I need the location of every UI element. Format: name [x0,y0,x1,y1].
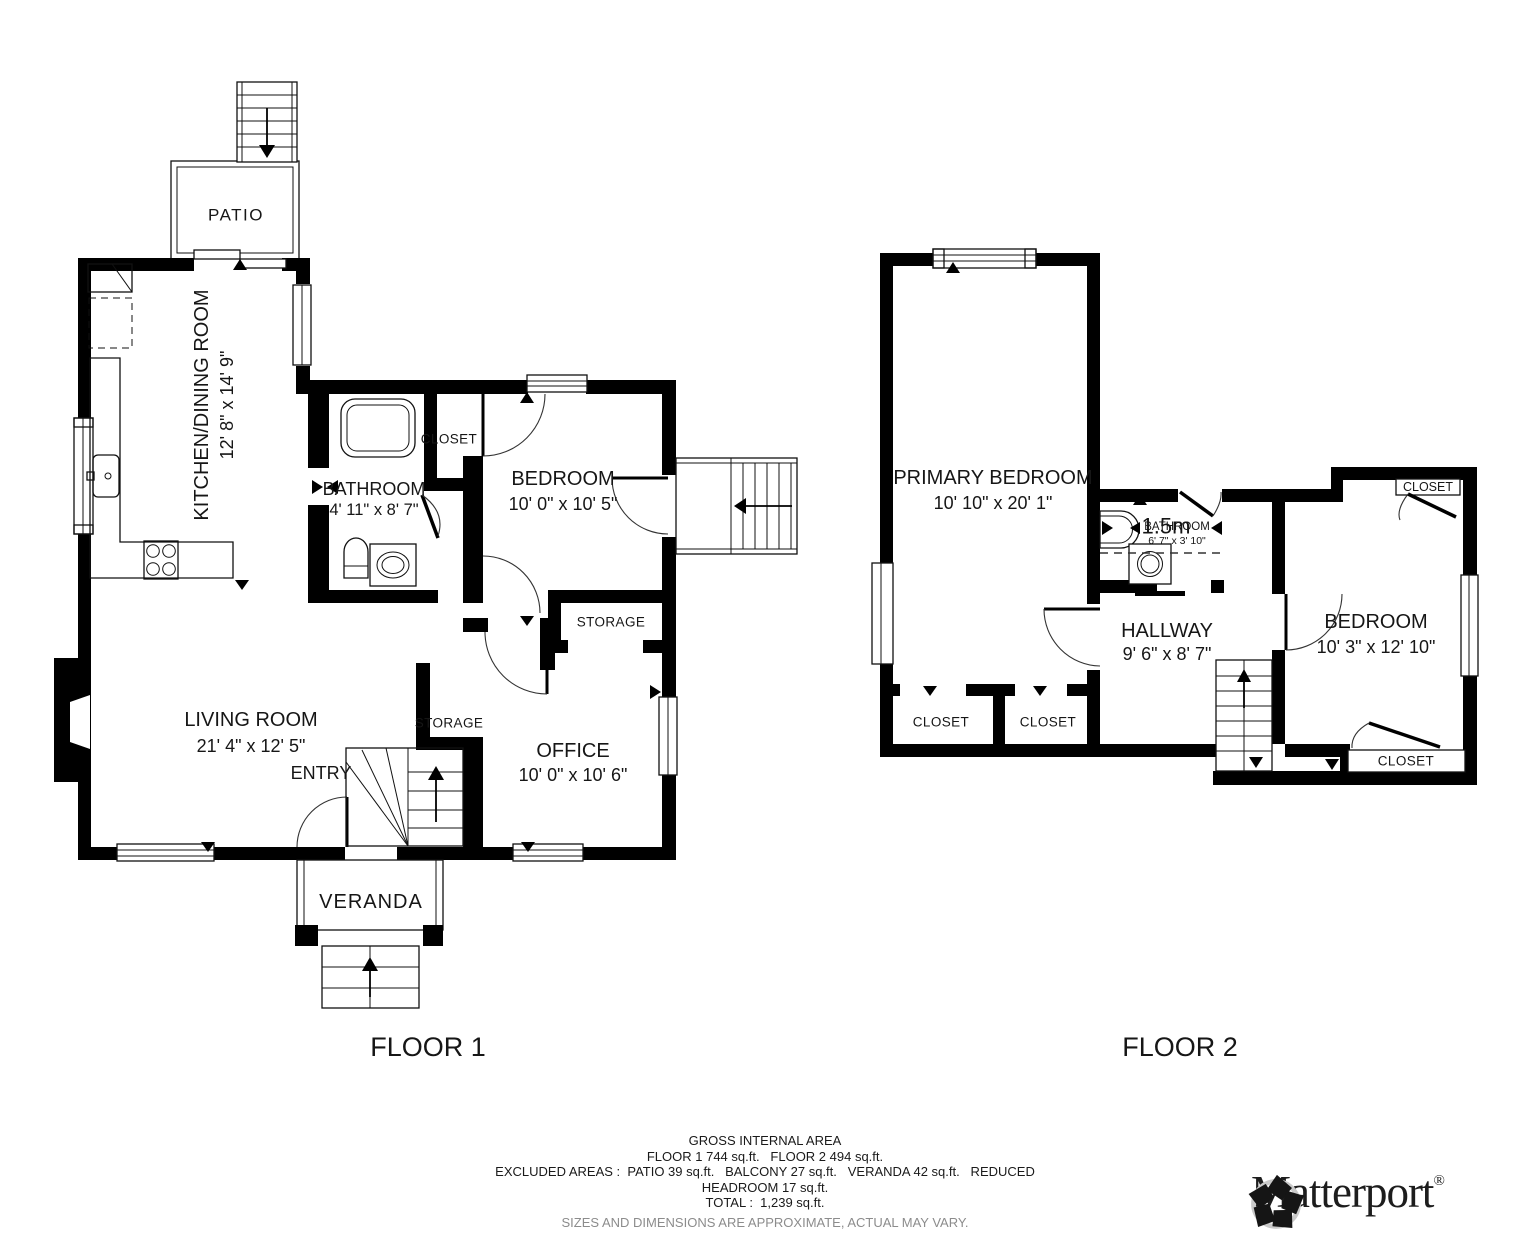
bathtub-icon [341,399,415,457]
window-bedroom2-right-icon [1461,575,1478,676]
summary-gross-title: GROSS INTERNAL AREA [0,1133,1530,1149]
window-primary-left-icon [872,563,893,664]
room-label-storage-lower: STORAGE [415,716,484,731]
door-closet-bottom-icon [1352,723,1440,748]
door-bedroom1-exterior-icon [612,478,668,534]
room-label-closet-right: CLOSET [1020,715,1076,730]
room-label-bathroom1: BATHROOM [323,479,426,499]
window-living-bottom-icon [117,844,214,861]
floorplan-sheet: PATIO KITCHEN/DINING ROOM 12' 8" x 14' 9… [0,0,1530,1253]
room-label-closet-left: CLOSET [913,715,969,730]
floor1-title: FLOOR 1 [370,1032,486,1062]
room-label-closet-bottom: CLOSET [1378,754,1434,769]
room-label-closet1: CLOSET [421,432,477,447]
room-dims-living: 21' 4" x 12' 5" [197,736,306,756]
floor1-stairs-top-icon [237,82,297,162]
room-label-office: OFFICE [536,740,609,762]
door-bedroom1-icon [483,394,545,456]
window-kitchen-right-icon [293,285,311,365]
room-dims-bedroom2: 10' 3" x 12' 10" [1317,637,1436,657]
window-primary-top-icon [933,249,1036,268]
toilet-icon [344,538,368,578]
door-office-icon [485,632,547,694]
room-dims-bedroom1: 10' 0" x 10' 5" [509,494,618,514]
washer-icon [1129,544,1171,584]
door-bathroom1-icon [422,495,440,538]
door-closet-top-icon [1399,494,1456,520]
floor1-veranda-icon [295,860,443,1008]
room-dims-kitchen: 12' 8" x 14' 9" [217,351,237,460]
floorplan-drawing: PATIO KITCHEN/DINING ROOM 12' 8" x 14' 9… [0,0,1530,1253]
summary-floor-areas: FLOOR 1 744 sq.ft. FLOOR 2 494 sq.ft. [0,1149,1530,1165]
door-bathroom2-icon [1180,492,1221,516]
door-entry-icon [297,797,347,847]
floor1-plan: PATIO KITCHEN/DINING ROOM 12' 8" x 14' 9… [54,82,797,1062]
floor2-plan: PRIMARY BEDROOM 10' 10" x 20' 1" BATHROO… [872,249,1478,1062]
window-office-bottom-icon [513,844,583,861]
room-dims-office: 10' 0" x 10' 6" [519,765,628,785]
room-label-primary: PRIMARY BEDROOM [893,467,1092,489]
room-label-entry: ENTRY [291,763,352,783]
registered-mark: ® [1433,1173,1444,1189]
matterport-logo: Matterport® [1245,1166,1445,1218]
room-label-closet-top: CLOSET [1403,480,1453,494]
room-label-patio: PATIO [208,206,264,225]
room-dims-bathroom2: 6' 7" x 3' 10" [1148,535,1206,547]
floor2-stairs-icon [1216,660,1272,771]
room-label-bedroom1: BEDROOM [511,468,614,490]
stove-icon [144,541,178,579]
bath-sink-icon [370,544,416,586]
room-label-kitchen: KITCHEN/DINING ROOM [191,289,213,520]
room-dims-primary: 10' 10" x 20' 1" [934,493,1053,513]
floor2-title: FLOOR 2 [1122,1032,1238,1062]
appliance-dashed-icon [89,298,132,348]
fireplace-notch [70,695,90,749]
room-label-bedroom2: BEDROOM [1324,611,1427,633]
room-label-veranda: VERANDA [319,891,423,913]
floor1-winder-stairs-icon [346,748,463,846]
matterport-pinwheel-icon [1245,1166,1307,1240]
room-dims-bathroom1: 4' 11" x 8' 7" [329,501,418,519]
room-dims-hallway: 9' 6" x 8' 7" [1123,644,1212,664]
floor1-stairs-right-icon [676,458,797,554]
room-label-storage-upper: STORAGE [577,615,646,630]
room-label-hallway: HALLWAY [1121,620,1213,642]
window-bedroom-top-icon [527,375,587,392]
door-nook-icon [483,556,540,613]
window-office-right-icon [659,697,677,775]
room-label-living: LIVING ROOM [184,709,317,731]
